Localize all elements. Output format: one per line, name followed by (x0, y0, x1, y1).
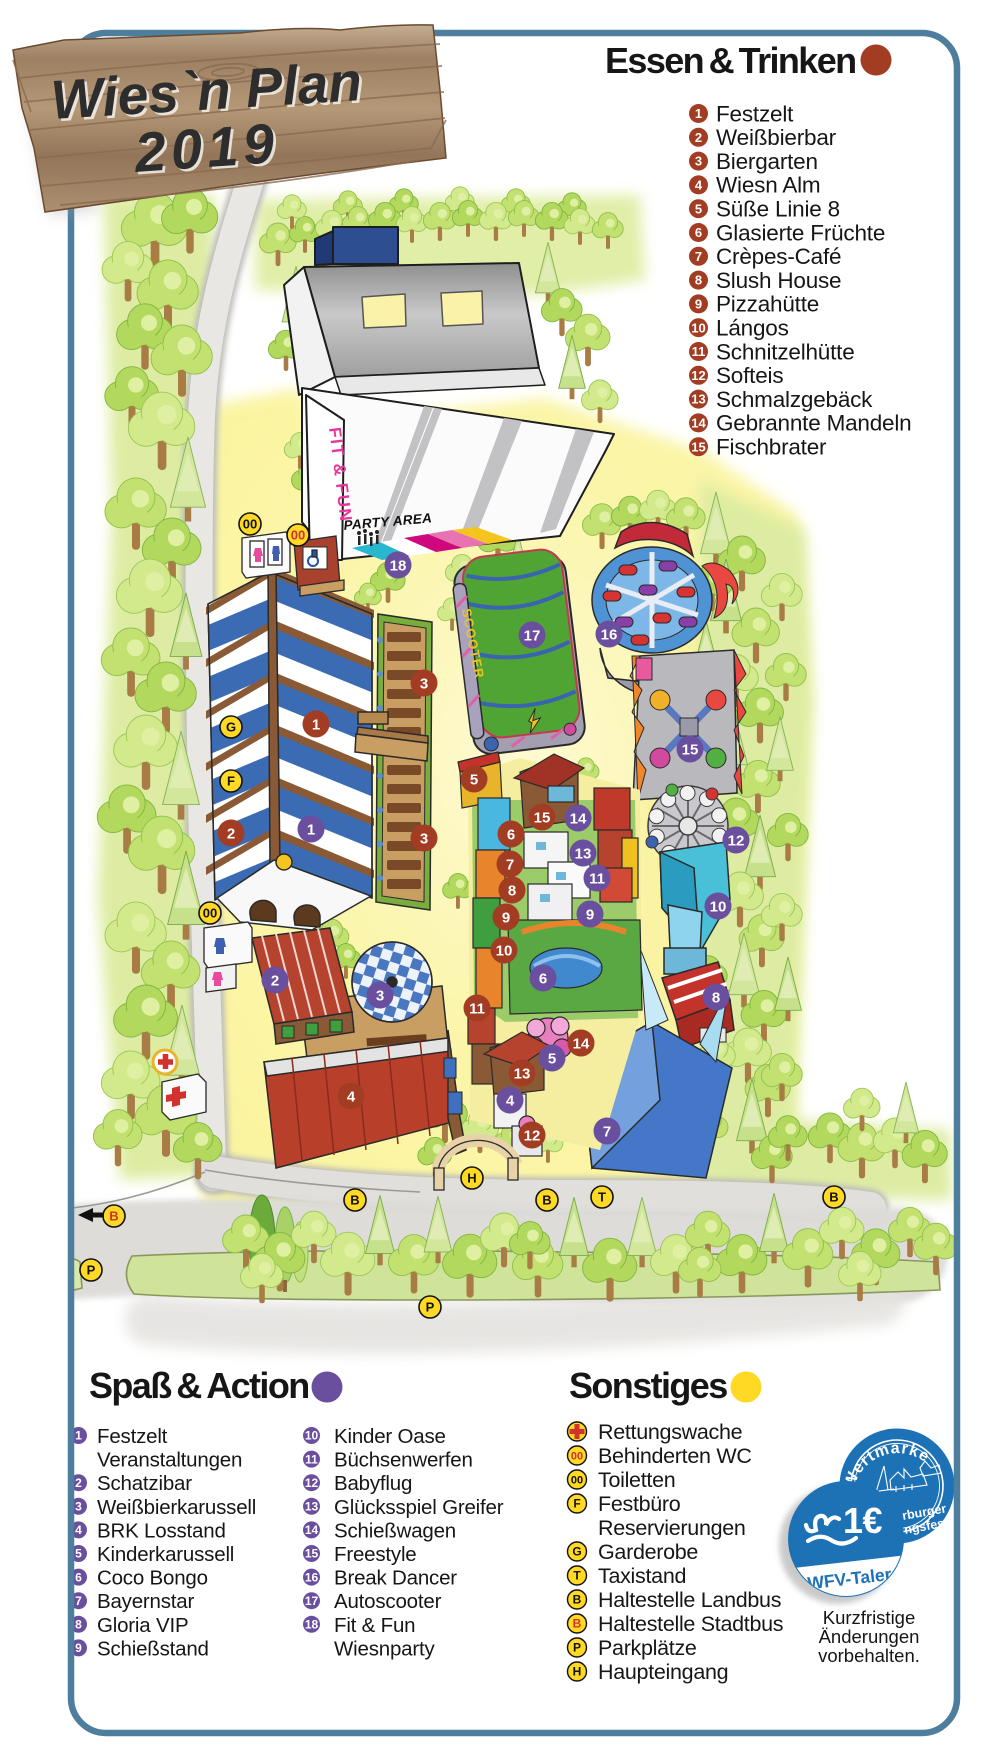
svg-text:Kinderkarussell: Kinderkarussell (97, 1543, 234, 1566)
svg-text:G: G (226, 720, 236, 735)
svg-text:11: 11 (469, 1000, 485, 1017)
svg-text:Haltestelle Landbus: Haltestelle Landbus (598, 1588, 781, 1612)
svg-text:Veranstaltungen: Veranstaltungen (97, 1449, 242, 1472)
svg-text:1: 1 (695, 106, 702, 121)
svg-text:Festzelt: Festzelt (716, 101, 794, 126)
svg-text:Süße Linie 8: Süße Linie 8 (716, 197, 840, 222)
svg-text:5: 5 (470, 771, 478, 788)
svg-text:1€: 1€ (843, 1500, 883, 1541)
svg-text:Taxistand: Taxistand (598, 1564, 686, 1588)
svg-text:P: P (573, 1641, 581, 1655)
svg-text:8: 8 (695, 273, 702, 288)
svg-text:3: 3 (420, 675, 428, 692)
svg-text:5: 5 (75, 1547, 82, 1561)
svg-text:12: 12 (691, 368, 705, 383)
svg-text:1: 1 (307, 821, 315, 838)
svg-text:11: 11 (305, 1452, 318, 1466)
svg-text:Behinderten WC: Behinderten WC (598, 1444, 752, 1468)
svg-text:8: 8 (75, 1618, 82, 1632)
svg-text:7: 7 (695, 249, 702, 264)
svg-text:00: 00 (243, 517, 257, 532)
svg-text:B: B (573, 1593, 582, 1607)
svg-text:P: P (426, 1300, 435, 1315)
svg-text:Bayernstar: Bayernstar (97, 1590, 195, 1613)
svg-text:2: 2 (271, 972, 279, 989)
svg-text:Spaß & Action: Spaß & Action (89, 1365, 309, 1406)
svg-text:H: H (467, 1171, 476, 1186)
svg-text:Garderobe: Garderobe (598, 1540, 698, 1564)
svg-text:Reservierungen: Reservierungen (598, 1516, 746, 1540)
svg-text:P: P (87, 1263, 96, 1278)
svg-text:Weißbierbar: Weißbierbar (716, 125, 837, 150)
svg-text:16: 16 (601, 626, 618, 643)
svg-text:7: 7 (75, 1594, 82, 1608)
svg-text:10: 10 (305, 1429, 319, 1443)
svg-text:H: H (573, 1665, 582, 1679)
svg-text:6: 6 (539, 970, 547, 987)
svg-text:Autoscooter: Autoscooter (334, 1590, 442, 1613)
svg-text:Rettungswache: Rettungswache (598, 1420, 742, 1444)
svg-text:Schmalzgebäck: Schmalzgebäck (716, 387, 873, 412)
svg-text:Glasierte Früchte: Glasierte Früchte (716, 220, 885, 245)
svg-text:Schnitzelhütte: Schnitzelhütte (716, 339, 855, 364)
svg-text:Gebrannte Mandeln: Gebrannte Mandeln (716, 411, 912, 436)
svg-text:Kinder Oase: Kinder Oase (334, 1425, 446, 1448)
svg-text:Weißbierkarussell: Weißbierkarussell (97, 1496, 256, 1519)
svg-text:3: 3 (420, 830, 428, 847)
svg-text:Sonstiges: Sonstiges (569, 1365, 727, 1406)
svg-text:15: 15 (305, 1547, 319, 1561)
svg-text:2: 2 (75, 1476, 82, 1490)
svg-text:Babyflug: Babyflug (334, 1472, 412, 1495)
svg-text:9: 9 (75, 1641, 82, 1655)
svg-text:12: 12 (305, 1476, 319, 1490)
svg-text:8: 8 (712, 989, 720, 1006)
svg-text:Gloria VIP: Gloria VIP (97, 1614, 188, 1637)
svg-text:T: T (573, 1569, 581, 1583)
svg-text:11: 11 (692, 344, 706, 359)
svg-text:7: 7 (603, 1123, 611, 1140)
svg-text:15: 15 (682, 741, 699, 758)
svg-text:3: 3 (75, 1500, 82, 1514)
svg-text:Schießstand: Schießstand (97, 1637, 209, 1660)
svg-text:Wiesnparty: Wiesnparty (334, 1637, 435, 1660)
svg-text:Haltestelle Stadtbus: Haltestelle Stadtbus (598, 1612, 783, 1636)
svg-text:00: 00 (203, 906, 217, 921)
svg-text:11: 11 (589, 870, 605, 887)
svg-text:9: 9 (586, 906, 594, 923)
svg-text:Festzelt: Festzelt (97, 1425, 168, 1448)
svg-text:G: G (572, 1545, 581, 1559)
svg-text:15: 15 (534, 809, 551, 826)
svg-text:vorbehalten.: vorbehalten. (818, 1645, 920, 1666)
svg-text:Biergarten: Biergarten (716, 149, 818, 174)
svg-text:Slush House: Slush House (716, 268, 841, 293)
svg-text:12: 12 (728, 832, 745, 849)
svg-text:13: 13 (575, 845, 592, 862)
svg-text:10: 10 (691, 320, 705, 335)
svg-text:3: 3 (695, 154, 702, 169)
svg-text:Glücksspiel Greifer: Glücksspiel Greifer (334, 1496, 504, 1519)
svg-text:00: 00 (571, 1450, 583, 1462)
svg-text:17: 17 (305, 1594, 319, 1608)
svg-text:2: 2 (695, 130, 702, 145)
svg-text:B: B (573, 1617, 582, 1631)
svg-text:14: 14 (305, 1523, 319, 1537)
svg-text:6: 6 (507, 826, 515, 843)
svg-text:10: 10 (710, 898, 727, 915)
svg-text:Break Dancer: Break Dancer (334, 1567, 457, 1590)
svg-text:1: 1 (75, 1429, 82, 1443)
svg-text:00: 00 (571, 1474, 583, 1486)
svg-text:18: 18 (305, 1618, 319, 1632)
svg-text:T: T (598, 1190, 606, 1205)
svg-text:Wiesn Alm: Wiesn Alm (716, 173, 820, 198)
svg-text:Lángos: Lángos (716, 316, 789, 341)
svg-text:18: 18 (390, 557, 407, 574)
svg-text:5: 5 (548, 1050, 556, 1067)
svg-text:Fit & Fun: Fit & Fun (334, 1614, 415, 1637)
svg-text:14: 14 (691, 415, 706, 430)
svg-text:5: 5 (695, 201, 702, 216)
svg-text:4: 4 (506, 1092, 515, 1109)
svg-text:1: 1 (312, 716, 320, 733)
svg-text:Softeis: Softeis (716, 363, 783, 388)
svg-text:9: 9 (695, 296, 702, 311)
svg-text:4: 4 (75, 1523, 82, 1537)
svg-text:B: B (542, 1193, 551, 1208)
svg-text:9: 9 (502, 909, 510, 926)
svg-text:8: 8 (508, 882, 516, 899)
svg-text:6: 6 (75, 1570, 82, 1584)
svg-text:12: 12 (524, 1127, 541, 1144)
svg-text:Essen & Trinken: Essen & Trinken (605, 40, 856, 81)
svg-text:B: B (109, 1209, 118, 1224)
svg-text:7: 7 (506, 856, 514, 873)
svg-text:Büchsenwerfen: Büchsenwerfen (334, 1449, 473, 1472)
svg-text:13: 13 (691, 392, 705, 407)
svg-text:2019: 2019 (132, 111, 282, 184)
svg-text:Freestyle: Freestyle (334, 1543, 417, 1566)
svg-text:Haupteingang: Haupteingang (598, 1660, 728, 1684)
svg-text:14: 14 (570, 810, 587, 827)
svg-text:15: 15 (691, 439, 705, 454)
svg-text:B: B (829, 1190, 838, 1205)
svg-text:17: 17 (524, 627, 541, 644)
svg-text:Fischbrater: Fischbrater (716, 435, 827, 460)
svg-text:6: 6 (695, 225, 702, 240)
svg-text:13: 13 (305, 1500, 319, 1514)
svg-text:Toiletten: Toiletten (598, 1468, 675, 1492)
svg-text:00: 00 (291, 528, 305, 543)
svg-text:Pizzahütte: Pizzahütte (716, 292, 819, 317)
svg-text:13: 13 (514, 1065, 531, 1082)
svg-text:4: 4 (695, 177, 703, 192)
svg-text:B: B (350, 1193, 359, 1208)
svg-text:Parkplätze: Parkplätze (598, 1636, 697, 1660)
svg-text:F: F (227, 774, 235, 789)
svg-text:16: 16 (305, 1570, 319, 1584)
svg-text:3: 3 (376, 987, 384, 1004)
svg-text:10: 10 (496, 942, 513, 959)
svg-text:Coco Bongo: Coco Bongo (97, 1567, 208, 1590)
svg-text:Schatzibar: Schatzibar (97, 1472, 192, 1495)
svg-text:14: 14 (573, 1035, 590, 1052)
svg-text:Schießwagen: Schießwagen (334, 1519, 456, 1542)
svg-text:Festbüro: Festbüro (598, 1492, 681, 1516)
svg-text:4: 4 (347, 1088, 356, 1105)
svg-text:2: 2 (227, 825, 235, 842)
svg-text:F: F (573, 1497, 580, 1511)
svg-text:Kurzfristige: Kurzfristige (823, 1607, 916, 1628)
svg-text:BRK Losstand: BRK Losstand (97, 1519, 226, 1542)
svg-text:Crèpes-Café: Crèpes-Café (716, 244, 841, 269)
svg-text:Änderungen: Änderungen (819, 1626, 920, 1647)
